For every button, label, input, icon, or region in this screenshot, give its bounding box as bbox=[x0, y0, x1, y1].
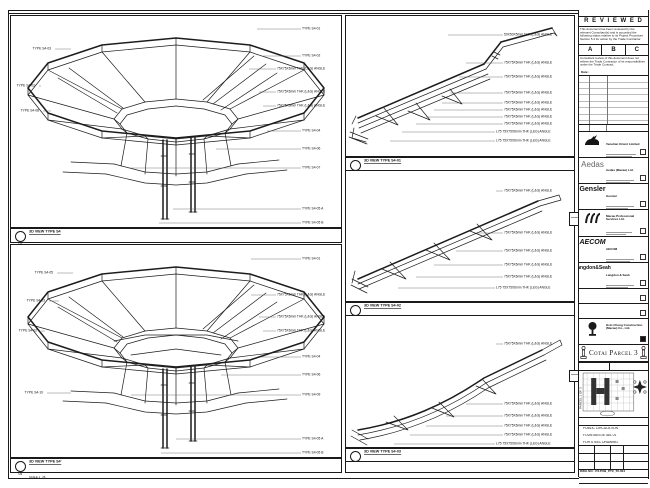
member-label: 75X75X6mm THK (L&G) ANGLE bbox=[277, 329, 325, 333]
company-row-blank-2 bbox=[579, 304, 648, 319]
member-label: 75X75X6mm THK (L&G) ANGLE bbox=[504, 342, 552, 346]
company-name: Venetian Orient Limited bbox=[606, 143, 640, 147]
aedas-logo: Aedas bbox=[581, 160, 604, 169]
member-label: L75 75X75X6mm THK (L&G) ANGLE bbox=[496, 130, 551, 134]
company-checkbox bbox=[640, 201, 646, 207]
company-name: Langdon & Seah bbox=[606, 274, 630, 278]
project-name: Cotai Parcel 3 bbox=[588, 349, 639, 357]
drawing-title: PUBLIC CIRCULATION FOUNTAIN DETAIL 01 FO… bbox=[579, 426, 648, 446]
member-label: TYPE S4-02 bbox=[0, 329, 37, 333]
member-label: TYPE S4-03 bbox=[7, 299, 46, 303]
view-title: 3D VIEW TYPE S4-01 bbox=[364, 159, 401, 164]
status-box-a: A bbox=[579, 45, 601, 55]
dwg-number: DWG NO : P3-PUB_PTC_55-004 bbox=[580, 470, 625, 474]
project-banner: Cotai Parcel 3 bbox=[579, 345, 648, 362]
stamp-paragraph-1: This document has been reviewed by the r… bbox=[580, 28, 645, 41]
member-label: TYPE S4-05 B bbox=[302, 221, 323, 225]
revision-table bbox=[579, 76, 648, 125]
member-label: 75X75X6mm THK (L&G) ANGLE bbox=[504, 75, 552, 79]
company-checkbox bbox=[640, 228, 646, 234]
company-checkbox bbox=[640, 295, 646, 301]
member-label: 75X75X6mm THK (L&G) ANGLE bbox=[504, 414, 552, 418]
viewport-3d-view-type-s4-prime: TYPE S4-0175X75X6mm THK (L&G) ANGLE75X75… bbox=[10, 244, 342, 458]
company-checkbox bbox=[640, 310, 646, 316]
company-checkbox-filled bbox=[640, 336, 646, 342]
status-box-c: C bbox=[625, 45, 648, 55]
company-name: Macau Professional Services Ltd. bbox=[606, 215, 644, 221]
member-label: L75 75X75X6mm THK (L&G) ANGLE bbox=[496, 442, 551, 446]
key-plan-side-label: PARCEL 1 OF 3 bbox=[579, 387, 583, 409]
triple-stroke-logo-icon bbox=[584, 212, 602, 224]
view-title-bar-s4-02: 02 3D VIEW TYPE S4-02 SCALE 1 : 10 QUANT… bbox=[345, 302, 575, 316]
member-label: 75X75X6mm THK (L&G) ANGLE bbox=[504, 108, 552, 112]
revision-table-header: REV DATE DESCRIPTION bbox=[579, 125, 648, 132]
approval-fields: DESIGNED - DRAWN DINO CHECKED - DATE 1-M… bbox=[579, 446, 648, 470]
gensler-logo: Gensler bbox=[579, 186, 605, 193]
company-row-aedas: Aedas Aedas (Macau) Ltd. bbox=[579, 158, 648, 184]
key-plan: PARCEL 1 OF 3 bbox=[579, 371, 648, 418]
member-label: TYPE S4-05 bbox=[15, 271, 54, 275]
stamp-status-boxes: A B C bbox=[579, 44, 648, 56]
company-checkbox bbox=[640, 254, 646, 260]
member-label: TYPE S4-01 bbox=[302, 27, 320, 31]
view-title-bar-s4-03: 03 3D VIEW TYPE S4-03 SCALE 1 : 10 QUANT… bbox=[345, 448, 575, 462]
company-row-macau-professional-services: Macau Professional Services Ltd. bbox=[579, 210, 648, 237]
member-label: TYPE S4-06 bbox=[302, 373, 320, 377]
member-label: L75 75X75X6mm THK (L&G) ANGLE bbox=[496, 286, 551, 290]
title-block: DO NOT SCALE DRAWING. USE FIGURED DIMENS… bbox=[578, 10, 648, 477]
member-label: TYPE S4-07 bbox=[302, 166, 320, 170]
viewport-3d-view-type-s4-02: 75X75X6mm THK (L&G) ANGLE75X75X6mm THK (… bbox=[345, 170, 575, 302]
member-label: TYPE S4-05 A bbox=[302, 437, 323, 441]
member-label: TYPE S4-09 bbox=[302, 393, 320, 397]
drawing-title-header: DRAWING TITLE : bbox=[579, 418, 648, 426]
dwg-number-row: DWG NO : P3-PUB_PTC_55-004 REV : A bbox=[579, 470, 648, 478]
view-title-bar-s4-prime: 05 3D VIEW TYPE S4' SCALE 1 : 25 bbox=[10, 458, 342, 473]
company-checkbox bbox=[640, 149, 646, 155]
review-stamp: R E V I E W E D This document has been r… bbox=[579, 17, 648, 76]
notes-strip bbox=[345, 461, 575, 473]
member-label: 75X75X6mm THK (L&G) ANGLE bbox=[277, 67, 325, 71]
stamp-date-label: Date : bbox=[581, 71, 589, 75]
company-name: Hsin Chong Construction (Macau) Co., Ltd… bbox=[606, 324, 644, 330]
drawing-title-line: FOUNTAIN DETAIL 01 bbox=[583, 434, 619, 438]
detail-bubble: 05 bbox=[15, 461, 26, 472]
view-title: 3D VIEW TYPE S4-03 bbox=[364, 450, 401, 455]
member-label: 75X75X6mm THK (L&G) ANGLE bbox=[277, 315, 325, 319]
company-row-contractor: Hsin Chong Construction (Macau) Co., Ltd… bbox=[579, 319, 648, 345]
key-plan-map: PARCEL 1 OF 3 bbox=[579, 371, 648, 417]
company-row-gensler: Gensler Gensler bbox=[579, 184, 648, 210]
member-label: 75X75X6mm THK (L&G) ANGLE bbox=[277, 104, 325, 108]
company-row-langdon-seah: Langdon&Seah Langdon & Seah bbox=[579, 263, 648, 289]
member-label: 75X75X6mm THK (L&G) ANGLE bbox=[504, 249, 552, 253]
member-label: L75 75X75X6mm THK (L&G) ANGLE bbox=[496, 139, 551, 143]
view-scale: SCALE 1 : 25 bbox=[29, 476, 45, 479]
compass-ornament-icon bbox=[633, 380, 647, 394]
drawing-sheet: TYPE S4-01TYPE S4-0275X75X6mm THK (L&G) … bbox=[0, 0, 650, 488]
winged-lion-logo-icon bbox=[582, 134, 604, 147]
view-title: 3D VIEW TYPE S4-02 bbox=[364, 304, 401, 309]
company-row-blank-1 bbox=[579, 289, 648, 304]
member-label: 75X75X6mm THK (L&G) ANGLE bbox=[504, 263, 552, 267]
company-row-venetian: Venetian Orient Limited bbox=[579, 132, 648, 158]
viewport-3d-view-type-s4-01: 50X50X5mm THK (L&G) ANGLE75X75X6mm THK (… bbox=[345, 15, 575, 157]
member-label: TYPE S4-04 bbox=[302, 355, 320, 359]
view-title: 3D VIEW TYPE S4' bbox=[29, 460, 62, 465]
member-label: 75X75X6mm THK (L&G) ANGLE bbox=[504, 424, 552, 428]
member-label: TYPE S4-01 bbox=[302, 257, 320, 261]
company-checkbox bbox=[640, 175, 646, 181]
company-name: Aedas (Macau) Ltd. bbox=[606, 169, 634, 173]
viewport-3d-view-type-s4: TYPE S4-01TYPE S4-0275X75X6mm THK (L&G) … bbox=[10, 15, 342, 228]
member-label: 50X50X5mm THK (L&G) ANGLE bbox=[504, 33, 552, 37]
member-label: 75X75X6mm THK (L&G) ANGLE bbox=[277, 90, 325, 94]
member-label: TYPE S4-02 bbox=[0, 84, 35, 88]
member-label: 75X75X6mm THK (L&G) ANGLE bbox=[504, 61, 552, 65]
member-label: TYPE S4-05 A bbox=[302, 207, 323, 211]
sheet-border-inner bbox=[8, 13, 647, 14]
view-title-bar-s4: 04 3D VIEW TYPE S4 SCALE 1 : 25 bbox=[10, 228, 342, 243]
member-label: TYPE S4-05 B bbox=[302, 451, 323, 455]
member-label: 75X75X6mm THK (L&G) ANGLE bbox=[504, 122, 552, 126]
member-label: TYPE S4-04 bbox=[302, 129, 320, 133]
sheet-note-row: DO NOT SCALE DRAWING. USE FIGURED DIMENS… bbox=[579, 10, 648, 17]
company-name: AECOM bbox=[606, 248, 617, 252]
status-box-b: B bbox=[601, 45, 624, 55]
member-label: 75X75X6mm THK (L&G) ANGLE bbox=[277, 293, 325, 297]
member-label: 75X75X6mm THK (L&G) ANGLE bbox=[504, 101, 552, 105]
column-ornament-icon bbox=[579, 346, 588, 360]
drawing-title-line: FOR STEEL DRAWING bbox=[583, 441, 619, 445]
stamp-title: R E V I E W E D bbox=[579, 17, 648, 27]
view-title: 3D VIEW TYPE S4 bbox=[29, 230, 61, 235]
company-name: Gensler bbox=[606, 195, 617, 199]
member-label: TYPE S4-02 bbox=[302, 54, 320, 58]
drawing-title-line: PUBLIC CIRCULATION bbox=[583, 427, 619, 431]
stamp-paragraph-2: Consultant review of this document does … bbox=[580, 57, 645, 67]
viewport-3d-view-type-s4-03: 75X75X6mm THK (L&G) ANGLE75X75X6mm THK (… bbox=[345, 315, 575, 448]
member-label: TYPE S4-08 bbox=[1, 109, 40, 113]
contractor-emblem-icon bbox=[586, 321, 599, 337]
view-title-bar-s4-01: 01 3D VIEW TYPE S4-01 SCALE 1 : 10 QUANT… bbox=[345, 157, 575, 171]
member-label: 75X75X6mm THK (L&G) ANGLE bbox=[504, 91, 552, 95]
member-label: 75X75X6mm THK (L&G) ANGLE bbox=[504, 402, 552, 406]
member-label: 75X75X6mm THK (L&G) ANGLE bbox=[504, 433, 552, 437]
member-label: TYPE S4-10 bbox=[5, 391, 44, 395]
detail-bubble: 04 bbox=[15, 231, 26, 242]
member-label: TYPE S4-06 bbox=[302, 147, 320, 151]
member-label: 75X75X6mm THK (L&G) ANGLE bbox=[504, 115, 552, 119]
aecom-logo: AECOM bbox=[579, 239, 605, 246]
member-label: 75X75X6mm THK (L&G) ANGLE bbox=[504, 189, 552, 193]
company-row-aecom: AECOM AECOM bbox=[579, 237, 648, 263]
cad-file-row: CAD FILE : P3-PUB_PTC_55-004.dwg bbox=[579, 484, 648, 488]
member-label: 75X75X6mm THK (L&G) ANGLE bbox=[504, 275, 552, 279]
member-label: TYPE S4-03 bbox=[13, 47, 52, 51]
member-label: 75X75X6mm THK (L&G) ANGLE bbox=[504, 231, 552, 235]
key-plan-header: KEY PLAN SCALE 1 : 2000 bbox=[579, 363, 648, 371]
dome-structure-drawing-2 bbox=[11, 245, 341, 457]
column-ornament-icon bbox=[639, 346, 648, 360]
dome-structure-drawing bbox=[11, 16, 341, 227]
company-checkbox bbox=[640, 280, 646, 286]
